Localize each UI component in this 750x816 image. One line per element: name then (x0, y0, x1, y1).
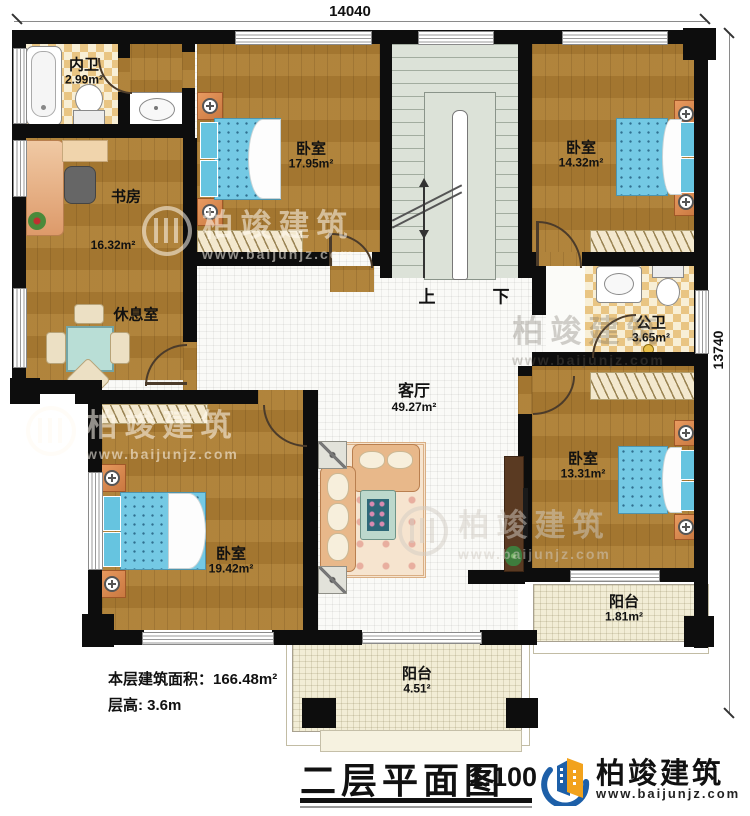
window (142, 632, 274, 645)
room-label-keting: 客厅49.27m² (392, 383, 437, 415)
doorway (182, 48, 195, 92)
floor-area-info: 本层建筑面积：166.48m² (108, 668, 277, 689)
chair-icon (110, 332, 130, 364)
window (13, 140, 27, 197)
wall (272, 630, 362, 645)
window (88, 472, 103, 570)
stair-down-label: 下 (493, 283, 510, 308)
door-leaf (145, 382, 187, 385)
title-underline-thin (300, 806, 532, 808)
window (418, 31, 494, 45)
wardrobe-icon (590, 372, 696, 400)
lamp-table-icon (318, 566, 347, 594)
doorway (518, 376, 532, 416)
stair-up-arrow-icon (419, 178, 429, 187)
floor-plan: 内卫2.99m² 书房 16.32m² 休息室 卧室17.95m² 卧室14.3… (0, 0, 750, 816)
coffee-table-icon (360, 490, 396, 540)
balcony-step (320, 730, 522, 752)
bed-icon (616, 118, 668, 196)
sink-icon (596, 266, 642, 303)
lamp-table-icon (318, 441, 347, 469)
bed-pillow (103, 496, 121, 531)
bed-blanket (662, 119, 682, 195)
window (562, 31, 668, 45)
nightstand-icon (197, 198, 223, 226)
bed-blanket (248, 119, 281, 199)
office-chair-icon (64, 166, 96, 204)
dimension-width: 14040 (300, 3, 400, 20)
dimension-tick (11, 13, 22, 24)
wall (518, 366, 532, 376)
column-block (684, 616, 714, 647)
nightstand-icon (98, 570, 126, 598)
door-leaf (536, 221, 539, 266)
bed-blanket (168, 493, 206, 569)
room-label-neiwei: 内卫2.99m² (65, 56, 103, 87)
room-area-shufang: 16.32m² (91, 239, 136, 253)
watermark-logo-icon (26, 406, 76, 456)
dimension-line-right (729, 34, 730, 714)
dimension-tick (699, 13, 710, 24)
wall (468, 570, 525, 584)
doorway (258, 390, 303, 404)
bed-pillow (200, 122, 218, 159)
wall (532, 266, 546, 315)
dimension-line-top (14, 21, 706, 22)
sofa-icon (352, 444, 420, 492)
company-logo-icon (540, 748, 590, 806)
room-label-bedroom4: 卧室19.42m² (209, 545, 254, 576)
wall (582, 252, 694, 266)
sliding-door (362, 632, 482, 644)
window (235, 31, 372, 45)
chair-icon (74, 304, 104, 324)
doorway (330, 266, 374, 292)
bathtub-icon (26, 46, 62, 126)
wall (518, 44, 532, 278)
room-label-bedroom2: 卧室14.32m² (559, 139, 604, 170)
room-label-gongwei: 公卫3.65m² (632, 314, 670, 345)
column-block (82, 614, 114, 647)
window (13, 288, 27, 368)
wall (118, 92, 130, 124)
wall (183, 138, 197, 342)
toilet-icon (656, 278, 680, 306)
plant-icon (28, 212, 46, 230)
floor-height-info: 层高: 3.6m (108, 694, 181, 715)
dimension-height: 13740 (700, 328, 736, 372)
wall (197, 252, 330, 266)
company-url: www.baijunjz.com (596, 786, 740, 801)
toilet-tank-icon (73, 110, 105, 125)
wall (380, 44, 392, 278)
wall (75, 390, 258, 404)
room-label-shufang: 书房 (111, 188, 141, 205)
room-label-bedroom1: 卧室17.95m² (289, 140, 334, 171)
column-block (506, 698, 538, 728)
sink-icon (128, 92, 186, 127)
room-label-xiuxishi: 休息室 (113, 306, 158, 323)
bed-blanket (662, 447, 682, 513)
tv-icon (523, 488, 528, 538)
title-underline (300, 798, 532, 803)
wardrobe-icon (100, 404, 208, 424)
drawing-scale: 1:100 (468, 762, 537, 793)
door-leaf (329, 233, 332, 266)
nightstand-icon (197, 92, 223, 120)
bed-pillow (103, 532, 121, 567)
room-label-balcony-bottom: 阳台4.51² (402, 665, 432, 696)
wall (118, 44, 130, 58)
sofa-icon (320, 466, 356, 572)
wall (182, 44, 195, 52)
column-block (302, 698, 336, 728)
stair-down-arrow-icon (419, 230, 429, 239)
wall (24, 124, 195, 138)
window (13, 48, 27, 124)
chair-icon (46, 332, 66, 364)
column-block (683, 28, 716, 60)
wall (518, 252, 537, 266)
room-label-bedroom3: 卧室13.31m² (561, 450, 606, 481)
wall (480, 630, 537, 645)
column-block (10, 378, 40, 404)
wall (182, 88, 195, 138)
bed-pillow (200, 160, 218, 197)
toilet-tank-icon (652, 264, 684, 278)
shelf-icon (62, 140, 108, 162)
stair-up-label: 上 (419, 283, 436, 308)
window (570, 570, 660, 582)
room-label-balcony-right: 阳台1.81m² (605, 593, 643, 624)
plant-icon (505, 546, 522, 566)
bed-icon (618, 446, 668, 514)
